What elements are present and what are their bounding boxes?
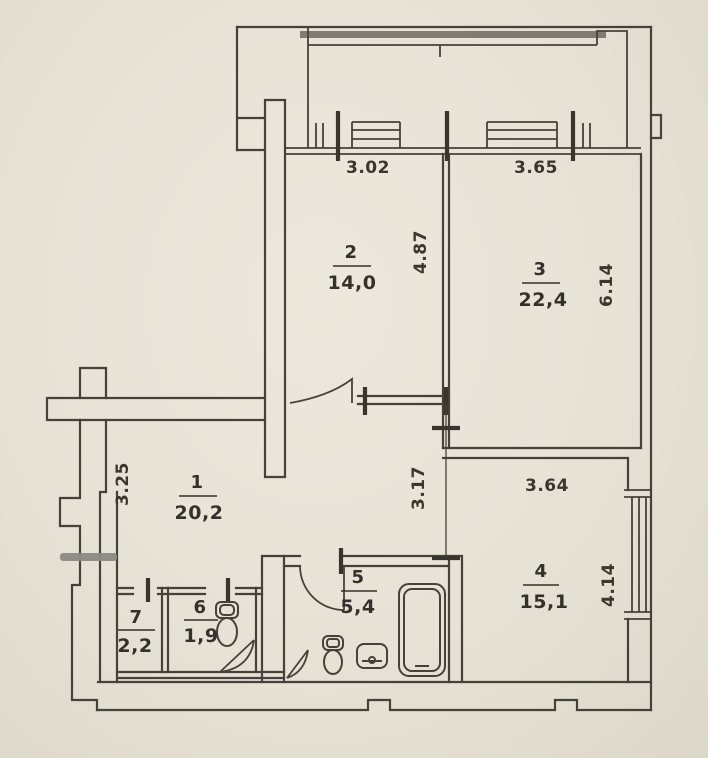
room-2-number: 2 [344,242,357,263]
window-room2-top [316,122,400,148]
toilet-wc-icon [216,602,238,646]
floor-plan: 1 20,2 2 14,0 3 22,4 4 15,1 5 5,4 6 1,9 … [0,0,708,758]
door-room5 [300,566,344,610]
toilet-bathroom-icon [323,636,343,674]
dim-room2-height: 4.87 [411,230,431,274]
room-1-area: 20,2 [175,502,224,524]
room-6-area: 1,9 [183,625,218,647]
room-2-area: 14,0 [328,272,377,294]
room-4-area: 15,1 [520,591,569,613]
dim-room3-width: 3.65 [514,158,558,178]
dim-room4-width: 3.64 [525,476,569,496]
dim-room2-width: 3.02 [346,158,390,178]
marker-line [60,553,117,561]
sink-bathroom-icon [357,644,387,668]
room-3-area: 22,4 [519,289,568,311]
room-1-number: 1 [190,472,203,493]
dimension-ticks [148,111,573,602]
room-7-area: 2,2 [117,635,152,657]
dim-corridor: 3.17 [409,466,429,510]
dimension-labels: 3.02 3.65 4.87 6.14 3.25 3.17 3.64 4.14 [113,158,619,607]
dim-room1-left: 3.25 [113,462,133,506]
room-5-number: 5 [351,567,364,588]
room-5-area: 5,4 [340,596,375,618]
window-room4-right [624,490,652,619]
room-4-number: 4 [534,561,547,582]
balcony-top-band [300,31,606,38]
room-7-number: 7 [129,607,142,628]
room-6-number: 6 [193,597,206,618]
bathtub [399,584,445,676]
door-room2 [290,379,352,403]
dim-room4-height: 4.14 [599,563,619,607]
dim-room3-height: 6.14 [597,263,617,307]
room-3-number: 3 [533,259,546,280]
door-room5-left [287,650,308,678]
windows [316,122,652,619]
